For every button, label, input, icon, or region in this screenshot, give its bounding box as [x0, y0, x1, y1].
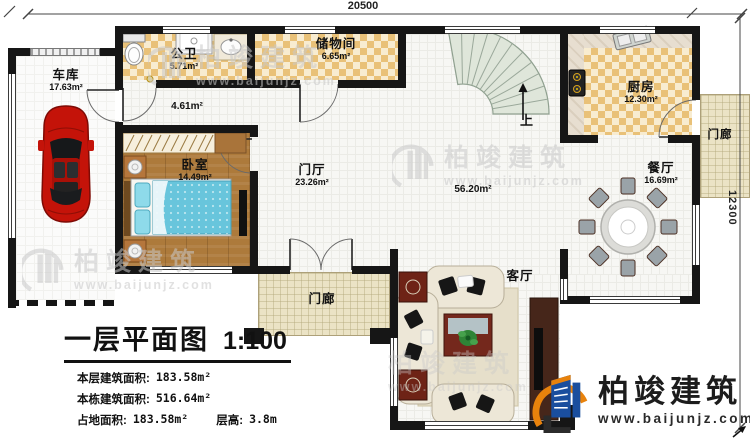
spiral-staircase	[448, 28, 549, 120]
wall	[692, 26, 700, 100]
plan-stats: 本层建筑面积: 183.58m² 本栋建筑面积: 516.64m² 占地面积: …	[64, 370, 291, 428]
title-block: 一层平面图 1:100 本层建筑面积: 183.58m² 本栋建筑面积: 516…	[64, 318, 291, 428]
plan-title-row: 一层平面图 1:100	[64, 318, 291, 363]
foyer-name: 门厅	[277, 163, 347, 177]
hallway-area: 4.61m²	[152, 101, 222, 113]
wall	[8, 238, 16, 308]
floor-drain	[147, 76, 153, 82]
window	[390, 338, 398, 406]
window	[8, 74, 16, 238]
wall	[115, 122, 123, 274]
stove	[569, 70, 585, 96]
garage-area: 17.63m²	[31, 82, 101, 92]
nightstand	[124, 156, 146, 178]
wall	[8, 48, 16, 74]
dining-table-set	[579, 178, 677, 276]
bedroom-name: 卧室	[160, 158, 230, 172]
room-label-bathroom: 公卫 5.71m²	[149, 47, 219, 72]
stat-value: 3.8m	[249, 412, 277, 428]
kitchen-name: 厨房	[606, 80, 676, 94]
wall	[115, 26, 123, 90]
window	[425, 421, 528, 430]
wall	[250, 125, 258, 137]
company-logo: 柏竣建筑 www.baijunjz.com	[528, 366, 750, 436]
stat-label: 本层建筑面积:	[77, 370, 150, 386]
window	[692, 205, 700, 265]
room-label-hallway: 4.61m²	[152, 101, 222, 113]
stat-row: 本层建筑面积: 183.58m²	[77, 370, 291, 386]
bathroom-name: 公卫	[149, 47, 219, 61]
wall	[338, 80, 406, 88]
room-label-south-porch: 门廊	[287, 292, 357, 306]
company-logo-icon	[528, 366, 590, 436]
company-name: 柏竣建筑	[598, 376, 750, 407]
wardrobe	[123, 133, 246, 153]
room-label-dining: 餐厅 16.69m²	[626, 161, 696, 186]
wall	[390, 421, 425, 430]
room-label-kitchen: 厨房 12.30m²	[606, 80, 676, 105]
wall	[560, 249, 568, 279]
bedroom-tv	[239, 190, 247, 236]
stat-row: 占地面积: 183.58m² 层高: 3.8m	[77, 412, 291, 428]
plan-scale: 1:100	[223, 327, 287, 356]
stairs-up-text: 上	[516, 114, 538, 129]
bathroom-sink	[214, 34, 248, 60]
room-label-foyer: 门厅 23.26m²	[277, 163, 347, 188]
greatroom-area: 56.20m²	[438, 184, 508, 196]
window	[560, 279, 568, 300]
room-label-storage: 储物间 6.65m²	[301, 37, 371, 62]
foyer-area: 23.26m²	[277, 177, 347, 187]
wall	[398, 26, 406, 88]
plan-title: 一层平面图	[64, 318, 209, 357]
stat-value: 516.64m²	[156, 391, 211, 407]
wall	[156, 80, 300, 88]
window	[445, 26, 520, 34]
wall	[390, 249, 398, 338]
bedroom-area: 14.49m²	[160, 172, 230, 182]
room-label-bedroom: 卧室 14.49m²	[160, 158, 230, 183]
kitchen-area: 12.30m²	[606, 94, 676, 104]
dimension-height: 12300	[726, 190, 738, 226]
wall	[232, 266, 290, 274]
south-porch-name: 门廊	[287, 292, 357, 306]
living-name: 客厅	[485, 269, 555, 283]
window	[600, 26, 655, 34]
bed	[124, 179, 231, 236]
storage-area: 6.65m²	[301, 51, 371, 61]
window	[590, 296, 680, 304]
wall	[115, 125, 258, 133]
floor-plan: 20500 12300 车库 17.63m² 公卫 5.71m² 储物间 6.6…	[0, 0, 750, 442]
stat-label: 本栋建筑面积:	[77, 391, 150, 407]
company-website: www.baijunjz.com	[598, 411, 750, 426]
wall	[560, 135, 598, 143]
stat-value: 183.58m²	[156, 370, 211, 386]
toilet	[123, 34, 145, 65]
wall	[692, 265, 700, 304]
wall	[247, 26, 255, 88]
room-label-east-porch: 门廊	[697, 129, 743, 142]
wall	[115, 266, 150, 274]
stat-value: 183.58m²	[133, 412, 188, 428]
stat-label: 占地面积:	[77, 412, 127, 428]
storage-name: 储物间	[301, 37, 371, 51]
nightstand	[124, 240, 146, 262]
porch-pillar	[370, 328, 390, 344]
dining-name: 餐厅	[626, 161, 696, 175]
garage-name: 车库	[31, 68, 101, 82]
stairs-up-label: 上	[516, 114, 538, 129]
wall	[250, 171, 258, 274]
wall	[560, 26, 568, 143]
room-label-living: 客厅	[485, 269, 555, 283]
stat-label: 层高:	[216, 412, 243, 428]
wall	[335, 26, 445, 34]
dining-area: 16.69m²	[626, 175, 696, 185]
garage-window	[30, 48, 100, 56]
stat-row: 本栋建筑面积: 516.64m²	[77, 391, 291, 407]
window	[285, 26, 335, 34]
bathroom-area: 5.71m²	[149, 61, 219, 71]
wall	[100, 48, 115, 56]
window	[150, 266, 232, 274]
wall	[668, 135, 700, 143]
dimension-width: 20500	[333, 0, 393, 12]
window	[163, 26, 210, 34]
east-porch-name: 门廊	[697, 129, 743, 142]
garage-door	[8, 300, 116, 306]
room-label-garage: 车库 17.63m²	[31, 68, 101, 93]
car	[38, 106, 94, 222]
room-label-greatroom: 56.20m²	[438, 184, 508, 196]
